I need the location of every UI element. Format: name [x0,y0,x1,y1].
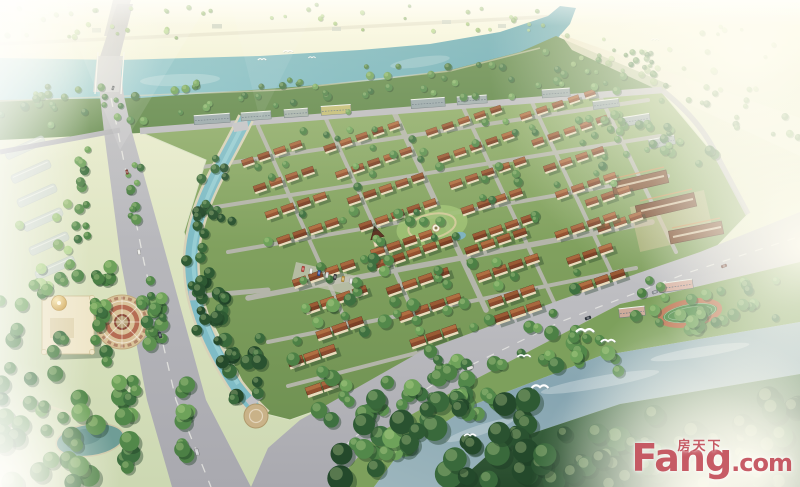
watermark-chinese: 房天下 [678,435,723,454]
scene-svg [0,0,800,487]
sun-glare [0,0,800,487]
aerial-rendering: 房天下 Fang .com [0,0,800,487]
watermark-tld: .com [731,449,792,477]
watermark-logo: 房天下 Fang .com [632,439,792,477]
